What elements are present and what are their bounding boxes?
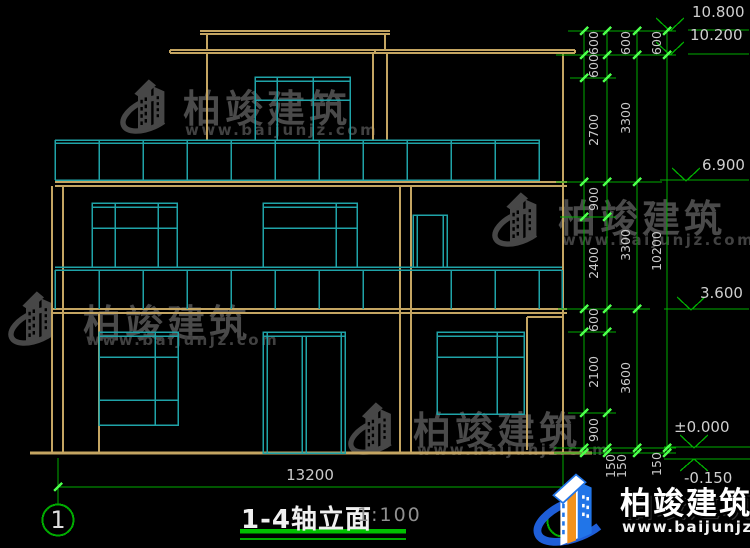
dim-label: 900 (587, 167, 601, 231)
axis-bubble-number: 1 (42, 506, 74, 534)
dimension-tick-marks (54, 27, 671, 491)
dim-label: 3300 (619, 213, 633, 277)
dim-label: 900 (587, 398, 601, 462)
dim-label: 2400 (587, 231, 601, 295)
elevation-drawing (0, 0, 750, 548)
brand-logo-icon (532, 471, 620, 548)
dim-label: 3600 (619, 346, 633, 410)
elevation-label: 10.800 (692, 3, 745, 21)
cad-elevation-screenshot: 柏竣建筑 www.baijunjz.com 柏竣建筑 www.baijunjz.… (0, 0, 750, 548)
brand-url: www.baijunjz.com (622, 518, 750, 536)
drawing-scale: 1:100 (357, 504, 422, 526)
overall-width-label: 13200 (270, 466, 350, 484)
elevation-label: 3.600 (700, 284, 743, 302)
windows-and-doors (55, 77, 562, 453)
dim-label: 3300 (619, 86, 633, 150)
elevation-label: 6.900 (702, 156, 745, 174)
dim-label: 600 (619, 11, 633, 75)
drawing-title: 1-4轴立面 (241, 499, 372, 536)
elevation-label: ±0.000 (674, 418, 730, 436)
dimension-lines (43, 18, 750, 539)
dim-label: 2100 (587, 340, 601, 404)
elevation-label: 10.200 (690, 26, 743, 44)
dim-label: 10200 (650, 219, 664, 283)
dim-label: 600 (587, 34, 601, 98)
brand-name: 柏竣建筑 (620, 478, 750, 523)
dim-label: 600 (650, 11, 664, 75)
dim-label: 2700 (587, 98, 601, 162)
